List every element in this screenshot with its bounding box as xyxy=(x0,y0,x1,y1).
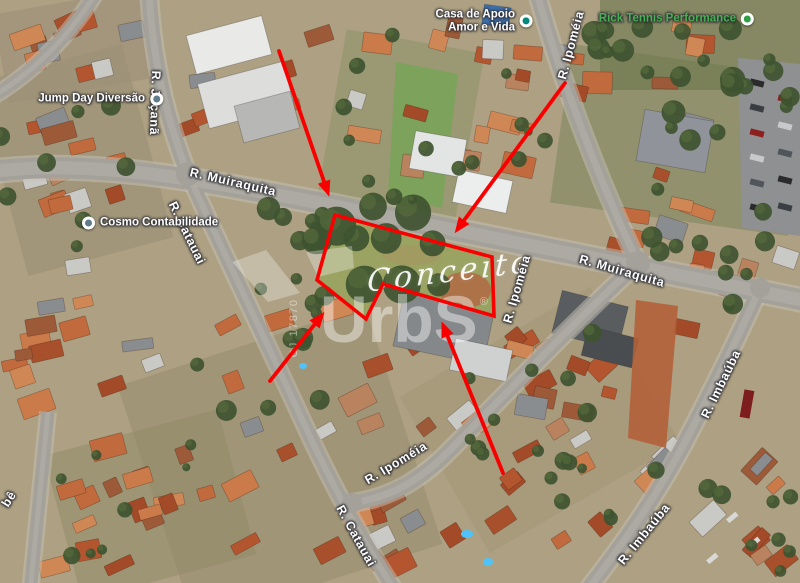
street-label: R. Imbaúba xyxy=(698,348,743,421)
street-label: R. Ipoméia xyxy=(555,9,587,80)
poi-casa-de-apoio-amor-e-vida[interactable]: Casa de ApoioAmor e Vida xyxy=(436,8,533,33)
map-labels-layer: R. MuiraquitaR. MuiraquitaR. JaçanãR. Ip… xyxy=(0,0,800,583)
pin-dot xyxy=(153,96,160,103)
street-label: R. Ipoméia xyxy=(501,253,534,324)
street-label: R. Catauai xyxy=(333,503,378,569)
map-pin-icon[interactable] xyxy=(150,93,163,106)
street-label: bê xyxy=(0,489,19,510)
map-viewport[interactable]: CJ 17870 UrbS ® Conceito R. MuiraquitaR.… xyxy=(0,0,800,583)
street-label: R. Catauai xyxy=(166,199,208,266)
pin-dot xyxy=(85,220,92,227)
poi-jump-day-divers-o[interactable]: Jump Day Diversão xyxy=(38,93,163,106)
map-pin-icon[interactable] xyxy=(741,13,754,26)
poi-rick-tennis-performance[interactable]: Rick Tennis Performance xyxy=(599,13,754,26)
street-label: R. Imbaúba xyxy=(615,501,673,568)
pin-dot xyxy=(744,16,751,23)
poi-label: Casa de ApoioAmor e Vida xyxy=(436,8,515,33)
pin-dot xyxy=(523,18,530,25)
poi-label: Jump Day Diversão xyxy=(38,93,145,106)
street-label: R. Ipoméia xyxy=(362,439,429,487)
street-label: R. Muiraquita xyxy=(188,165,277,199)
poi-label: Cosmo Contabilidade xyxy=(100,217,218,230)
street-label: R. Muiraquita xyxy=(578,252,667,290)
poi-cosmo-contabilidade[interactable]: Cosmo Contabilidade xyxy=(82,217,218,230)
poi-label: Rick Tennis Performance xyxy=(599,13,736,26)
map-pin-icon[interactable] xyxy=(520,15,533,28)
map-pin-icon[interactable] xyxy=(82,217,95,230)
